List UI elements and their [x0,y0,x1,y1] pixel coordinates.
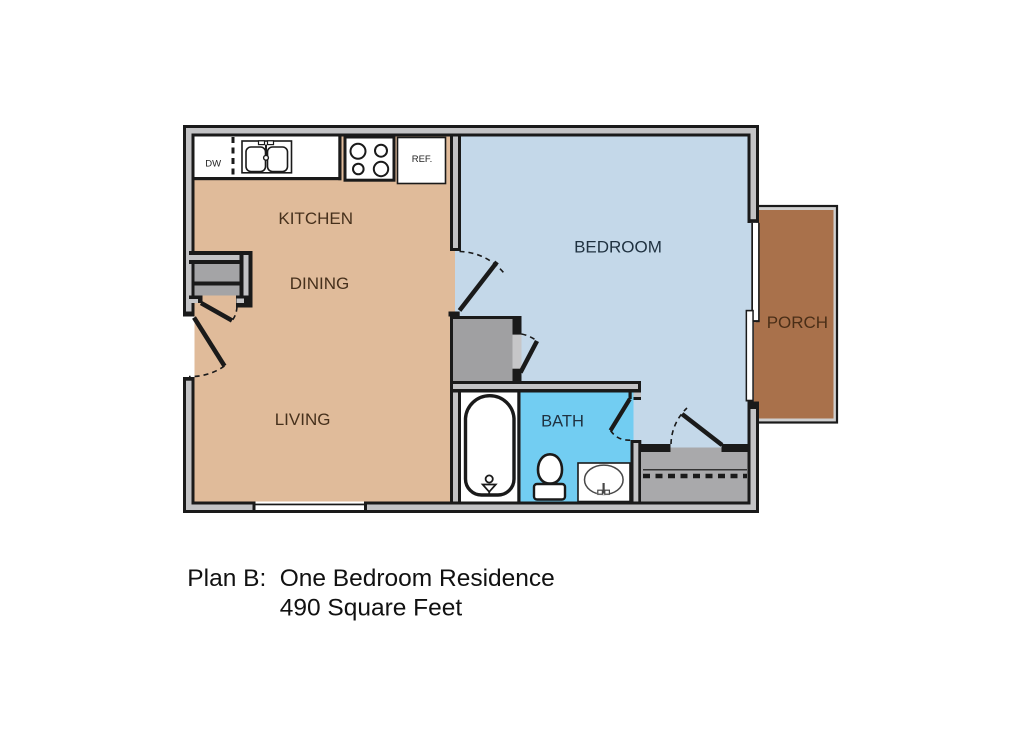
svg-text:LIVING: LIVING [275,410,331,429]
svg-text:BATH: BATH [541,413,584,431]
svg-text:DINING: DINING [290,274,350,293]
svg-text:Plan B:: Plan B: [187,565,266,592]
svg-text:REF.: REF. [412,154,433,165]
svg-text:PORCH: PORCH [767,313,828,332]
svg-text:KITCHEN: KITCHEN [278,209,353,228]
svg-text:490 Square Feet: 490 Square Feet [280,595,463,622]
svg-text:One Bedroom Residence: One Bedroom Residence [280,565,555,592]
svg-text:DW: DW [205,159,221,170]
svg-text:BEDROOM: BEDROOM [574,237,662,256]
